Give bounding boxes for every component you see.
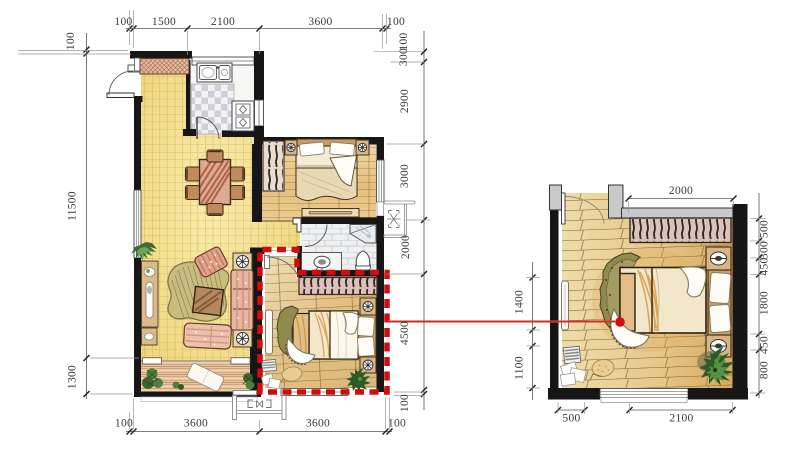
svg-text:100: 100 — [399, 394, 411, 412]
svg-text:1800: 1800 — [759, 291, 771, 315]
svg-text:1500: 1500 — [152, 16, 176, 28]
svg-text:450: 450 — [759, 336, 771, 354]
svg-text:800: 800 — [759, 361, 771, 379]
svg-text:1100: 1100 — [514, 356, 526, 380]
svg-text:2100: 2100 — [211, 16, 235, 28]
svg-text:100: 100 — [387, 16, 405, 28]
svg-text:100: 100 — [388, 418, 406, 430]
svg-text:4500: 4500 — [399, 321, 411, 345]
svg-text:2000: 2000 — [400, 235, 412, 259]
svg-text:100: 100 — [115, 418, 133, 430]
svg-text:1400: 1400 — [514, 290, 526, 314]
svg-text:1300: 1300 — [67, 365, 79, 389]
svg-text:300: 300 — [398, 48, 410, 66]
svg-text:11500: 11500 — [67, 191, 79, 221]
svg-text:2000: 2000 — [669, 185, 693, 197]
svg-text:500: 500 — [759, 220, 771, 238]
svg-text:100: 100 — [398, 32, 410, 50]
svg-text:3600: 3600 — [306, 418, 330, 430]
svg-text:3000: 3000 — [399, 164, 411, 188]
svg-text:2100: 2100 — [669, 413, 693, 425]
svg-text:3600: 3600 — [308, 16, 332, 28]
svg-text:500: 500 — [562, 413, 580, 425]
svg-text:450: 450 — [759, 257, 771, 275]
svg-text:100: 100 — [65, 32, 77, 50]
svg-text:300: 300 — [759, 241, 771, 259]
svg-text:100: 100 — [114, 16, 132, 28]
svg-text:2900: 2900 — [399, 89, 411, 113]
svg-text:3600: 3600 — [184, 418, 208, 430]
